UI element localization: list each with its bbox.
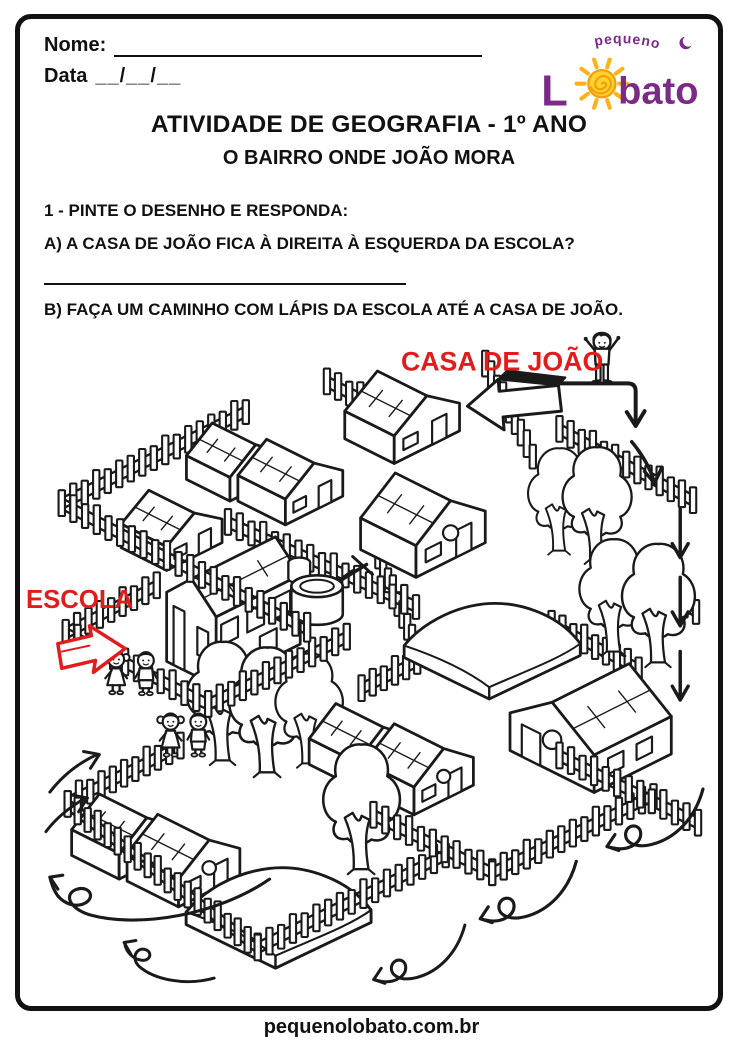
name-label: Nome: [44, 34, 106, 57]
question-1: 1 - PINTE O DESENHO E RESPONDA: [44, 201, 348, 221]
down-arrow [672, 509, 688, 557]
logo-word-top: pequeno [593, 30, 663, 52]
question-b: B) FAÇA UM CAMINHO COM LÁPIS DA ESCOLA A… [44, 300, 623, 320]
kid-figure [187, 713, 209, 757]
page-subtitle: O BAIRRO ONDE JOÃO MORA [20, 147, 718, 170]
kid-figure [135, 652, 157, 696]
casa-de-joao-label: CASA DE JOÃO [401, 346, 603, 377]
date-row: Data __/__/__ [44, 65, 181, 88]
name-line [114, 33, 482, 57]
tree [622, 544, 695, 667]
pequeno-lobato-logo: pequeno L bato [534, 25, 706, 122]
swirl-arrow [374, 925, 465, 983]
logo-word-rest: bato [618, 71, 698, 113]
logo-letter-l: L [541, 67, 568, 115]
page-border: Nome: Data __/__/__ pequeno L bato ATIVI… [15, 14, 723, 1011]
swirl-arrow [124, 940, 214, 981]
neighborhood-illustration: CASA DE JOÃO ESCOLA [20, 325, 718, 986]
worksheet-page: { "header": { "name_label": "Nome:", "da… [0, 0, 743, 1050]
crescent-icon [679, 37, 691, 50]
escola-label: ESCOLA [26, 586, 133, 614]
date-label: Data [44, 65, 87, 88]
question-a: A) A CASA DE JOÃO FICA À DIREITA À ESQUE… [44, 234, 575, 254]
date-line: __/__/__ [95, 65, 181, 88]
answer-line [44, 259, 406, 285]
path-arrow [550, 383, 645, 426]
website-footer: pequenolobato.com.br [0, 1016, 743, 1039]
down-arrow [672, 652, 688, 700]
page-title: ATIVIDADE DE GEOGRAFIA - 1º ANO [20, 111, 718, 139]
house [121, 490, 222, 570]
name-row: Nome: [44, 33, 524, 57]
